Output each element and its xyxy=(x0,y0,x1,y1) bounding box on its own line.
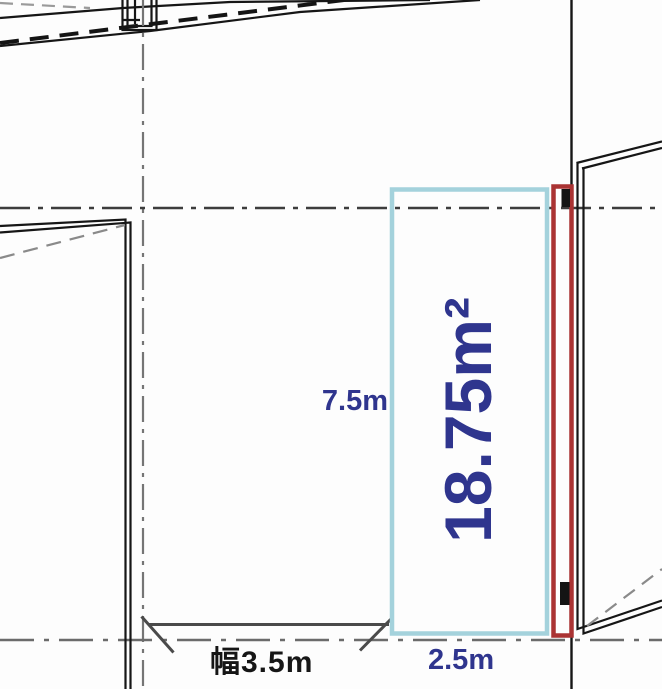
area-size-label: 18.75m² xyxy=(435,297,501,543)
left-building-wall xyxy=(0,220,131,689)
depth-dimension-label: 7.5m xyxy=(302,387,388,416)
curb-dashed-line xyxy=(0,3,90,8)
strip-marker-bottom xyxy=(560,582,570,605)
right-neighbor-dashed-line xyxy=(587,569,662,626)
frontage-dimension-label: 幅3.5m xyxy=(210,648,313,678)
left-neighbor-dashed-line xyxy=(0,225,125,258)
plan-linework xyxy=(0,0,662,689)
site-plan-drawing: 7.5m 18.75m² 2.5m 幅3.5m xyxy=(0,0,662,689)
gate-structure xyxy=(123,0,157,30)
accent-strip-box xyxy=(554,187,572,636)
strip-marker-top xyxy=(562,189,571,207)
right-building-wall xyxy=(577,142,662,634)
dimension-tick-left xyxy=(142,617,174,653)
dimension-tick-right xyxy=(360,618,393,651)
width-dimension-label: 2.5m xyxy=(428,646,494,675)
